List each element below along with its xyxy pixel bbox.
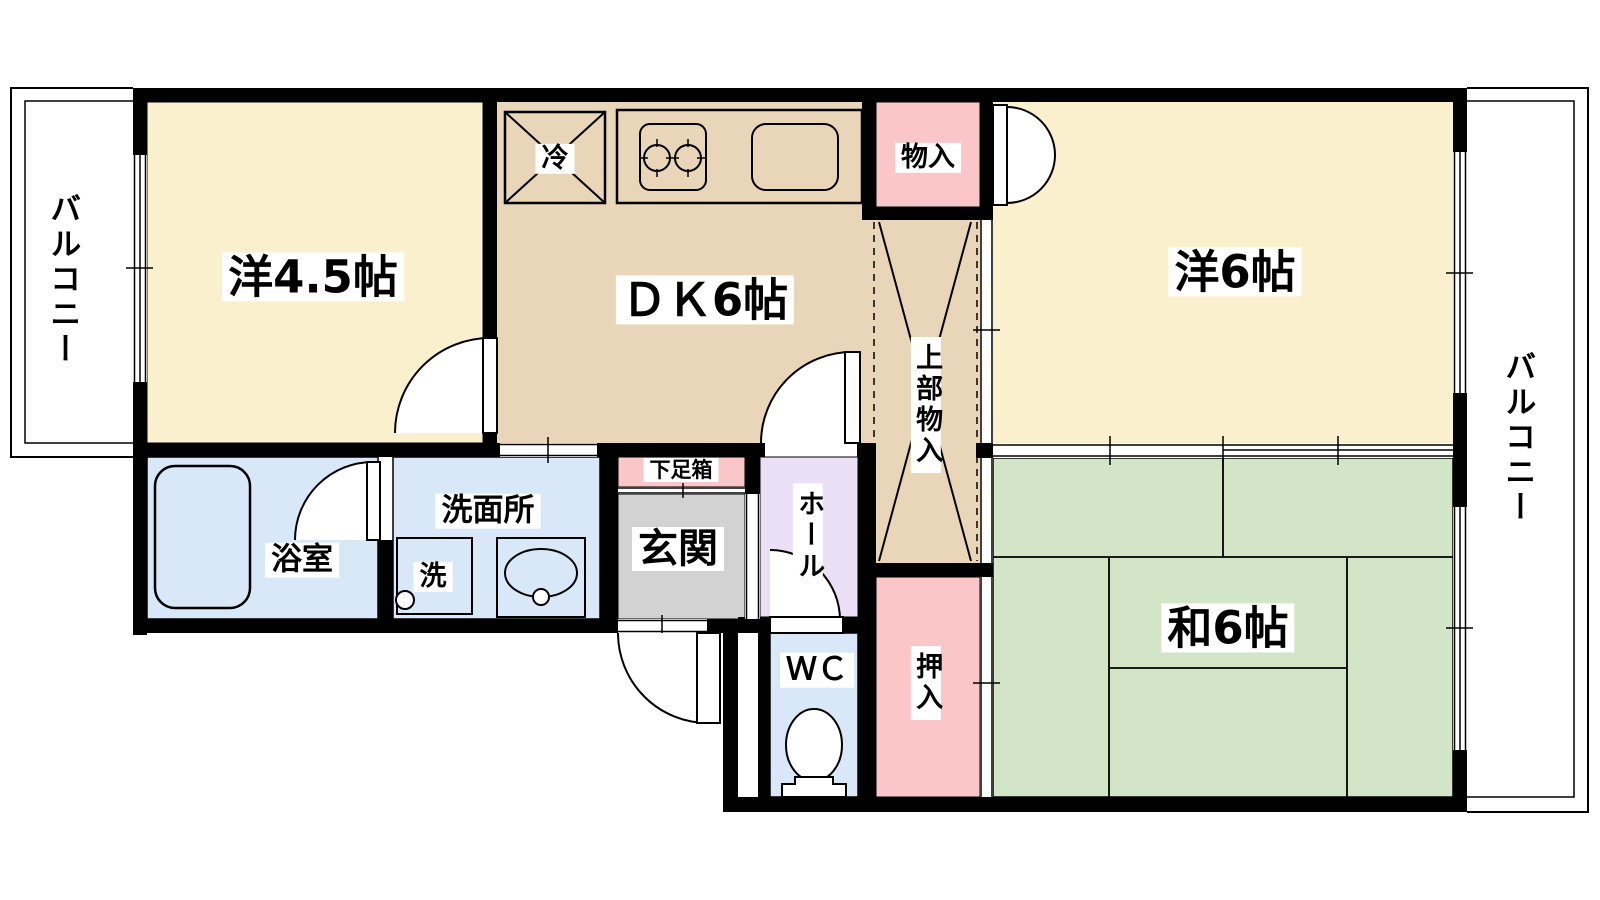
- wall-segment: [133, 88, 1467, 102]
- wall-segment: [707, 619, 738, 633]
- wall-segment: [133, 619, 618, 633]
- wall-segment: [133, 382, 147, 635]
- room-japanese-6-label: 和6帖: [1161, 603, 1294, 652]
- balcony-right-label: バルコニー: [1500, 345, 1535, 532]
- hall-label: ホール: [793, 484, 823, 589]
- wall-segment: [597, 443, 765, 457]
- front-door-swing: [618, 633, 708, 723]
- wall-segment: [758, 633, 770, 797]
- entrance-label: 玄関: [632, 527, 724, 571]
- door-leaf-bathroom: [367, 462, 380, 540]
- sliding-track: [980, 220, 993, 563]
- washing-machine-hose: [396, 591, 414, 609]
- front-door-leaf: [697, 633, 720, 723]
- wall-segment: [862, 207, 993, 220]
- door-leaf-western45: [483, 338, 497, 433]
- floor-plan: バルコニー 洋4.5帖 ＤＫ6帖 洋6帖 和6帖 物入 上部物入 押入 浴室 洗…: [0, 0, 1600, 900]
- upper-storage-label: 上部物入: [911, 337, 941, 473]
- wall-segment: [483, 102, 497, 338]
- wall-segment: [483, 433, 497, 457]
- wall-segment: [843, 617, 858, 633]
- wall-segment: [1453, 393, 1467, 507]
- wall-segment: [980, 102, 993, 207]
- futon-closet-label: 押入: [911, 646, 941, 720]
- refrigerator-label: 冷: [536, 144, 575, 174]
- wall-segment: [378, 540, 393, 619]
- closet-door-leaf: [993, 105, 1007, 205]
- wall-segment: [133, 443, 500, 457]
- wall-segment: [745, 457, 760, 494]
- wall-segment: [1453, 750, 1467, 812]
- wall-segment: [876, 563, 993, 577]
- floor-plan-drawing: [0, 0, 1600, 900]
- wall-segment: [600, 457, 618, 633]
- toilet-label: ＷＣ: [780, 653, 854, 688]
- toilet-bowl-icon: [786, 709, 842, 781]
- door-leaf-dk-hall: [845, 352, 860, 443]
- room-western-4-5-label: 洋4.5帖: [222, 252, 404, 301]
- shoe-box-label: 下足箱: [644, 458, 719, 482]
- bathroom-label: 浴室: [265, 543, 339, 578]
- room-dk-label: ＤＫ6帖: [616, 275, 794, 324]
- wall-segment: [862, 102, 876, 220]
- wash-basin-drain: [533, 589, 549, 605]
- wall-segment: [858, 443, 876, 812]
- wall-segment: [723, 797, 1465, 812]
- storage-closet-label: 物入: [895, 143, 961, 173]
- wall-segment: [976, 443, 993, 458]
- washroom-label: 洗面所: [436, 494, 541, 529]
- wall-segment: [738, 617, 770, 633]
- balcony-left-label: バルコニー: [45, 187, 80, 374]
- wall-segment: [1453, 88, 1467, 152]
- door-leaf-wc: [770, 617, 843, 633]
- washing-machine-label: 洗: [414, 562, 453, 592]
- room-western-6-label: 洋6帖: [1168, 247, 1301, 296]
- sliding-track: [980, 577, 993, 797]
- wall-segment: [723, 633, 738, 812]
- wall-segment: [133, 88, 147, 155]
